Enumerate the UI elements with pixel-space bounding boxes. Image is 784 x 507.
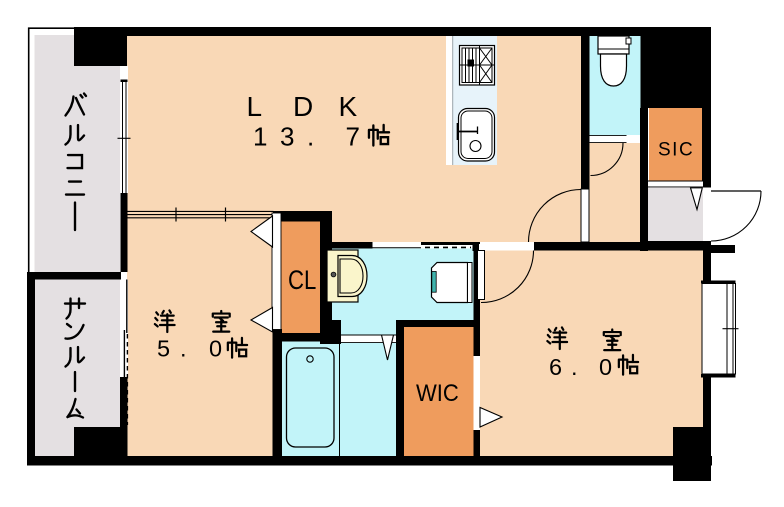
svg-text:L: L bbox=[247, 91, 263, 122]
svg-text:D: D bbox=[293, 91, 313, 122]
svg-text:5: 5 bbox=[157, 336, 170, 362]
svg-text:CL: CL bbox=[288, 266, 316, 296]
svg-text:0: 0 bbox=[599, 354, 612, 380]
svg-text:.: . bbox=[571, 354, 578, 380]
svg-text:SIC: SIC bbox=[658, 140, 694, 161]
svg-text:3: 3 bbox=[280, 122, 294, 152]
svg-text:WIC: WIC bbox=[416, 379, 459, 406]
svg-text:.: . bbox=[180, 336, 187, 362]
svg-text:1: 1 bbox=[253, 122, 267, 152]
svg-text:6: 6 bbox=[549, 354, 562, 380]
svg-text:7: 7 bbox=[346, 122, 360, 152]
svg-text:K: K bbox=[339, 91, 358, 122]
svg-text:0: 0 bbox=[209, 336, 222, 362]
svg-text:.: . bbox=[307, 122, 314, 152]
